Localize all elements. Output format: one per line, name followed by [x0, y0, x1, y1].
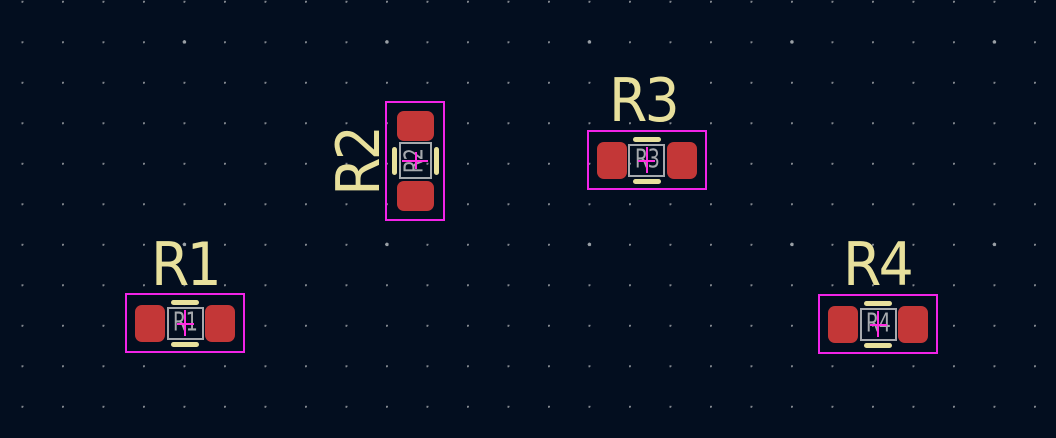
footprint-anchor-cross [870, 324, 887, 326]
resistor-footprint-r3[interactable]: R3 [587, 130, 707, 190]
silkscreen-bar-top [633, 137, 661, 142]
pad-1[interactable] [135, 305, 165, 342]
footprint-anchor-cross [414, 153, 416, 170]
pad-2[interactable] [396, 111, 433, 141]
reference-designator-label-r3[interactable]: R3 [609, 70, 677, 130]
silkscreen-bar-bottom [171, 342, 199, 347]
silkscreen-bar-bottom [633, 179, 661, 184]
resistor-footprint-r4[interactable]: R4 [818, 294, 938, 354]
pad-2[interactable] [667, 142, 697, 179]
reference-designator-label-r1[interactable]: R1 [151, 234, 219, 294]
pcb-canvas[interactable]: R1 R1 R2 R2 R3 R3 [0, 0, 1056, 438]
pad-1[interactable] [597, 142, 627, 179]
resistor-footprint-r1[interactable]: R1 [125, 293, 245, 353]
footprint-anchor-cross [177, 323, 194, 325]
silkscreen-bar-top [171, 300, 199, 305]
pad-2[interactable] [898, 306, 928, 343]
silkscreen-bar-top [864, 301, 892, 306]
reference-designator-label-r2[interactable]: R2 [329, 127, 389, 195]
silkscreen-bar-bottom [433, 147, 438, 175]
reference-designator-label-r4[interactable]: R4 [843, 235, 911, 295]
footprint-anchor-cross [638, 160, 655, 162]
pad-1[interactable] [828, 306, 858, 343]
silkscreen-bar-bottom [864, 343, 892, 348]
pad-2[interactable] [205, 305, 235, 342]
pad-1[interactable] [396, 181, 433, 211]
